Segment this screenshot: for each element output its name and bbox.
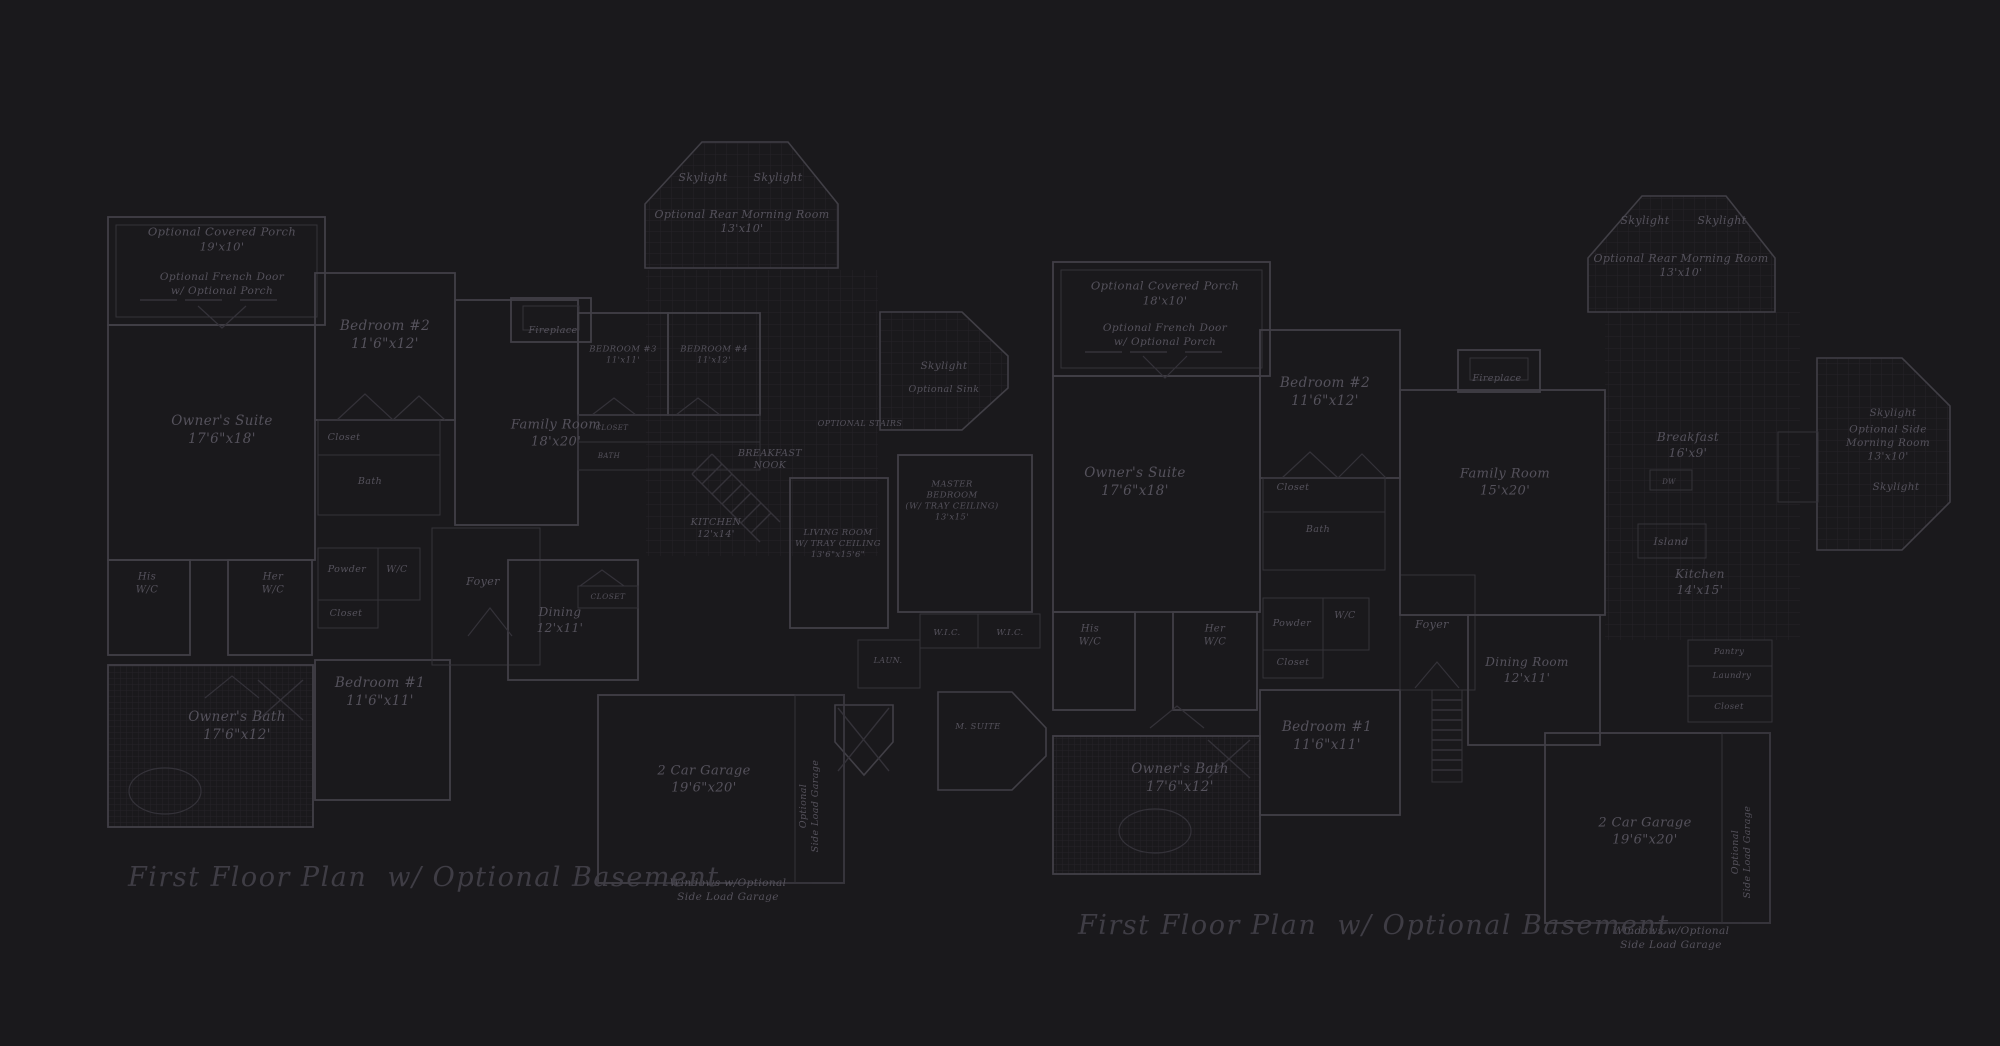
label-bath: Bath [357, 476, 382, 487]
suite-bay [938, 692, 1046, 790]
label-skylight: Skylight [678, 171, 727, 184]
label-fireplace: Fireplace [527, 325, 577, 336]
label-m-suite: M. SUITE [954, 722, 1001, 732]
plan-title-right: First Floor Plan w/ Optional Basement [1078, 910, 1670, 941]
label-optional-covered-porch: Optional Covered Porch18'x10' [1091, 279, 1239, 308]
label-bedroom-2: Bedroom #211'6"x12' [1279, 375, 1370, 409]
label-bedroom-1: Bedroom #111'6"x11' [1281, 719, 1372, 753]
label-skylight: Skylight [920, 360, 967, 372]
label-island: Island [1652, 536, 1688, 548]
closet-door-chevron [393, 396, 445, 420]
label-closet: CLOSET [591, 592, 626, 601]
label-closet: Closet [330, 608, 363, 619]
label-closet: CLOSET [596, 424, 630, 432]
label-foyer: Foyer [1414, 618, 1449, 631]
closet-door-chevron [1143, 356, 1187, 378]
right-plan: SkylightSkylightOptional Rear Morning Ro… [1053, 196, 1950, 951]
label-owner-s-suite: Owner's Suite17'6"x18' [1084, 465, 1186, 499]
label-closet: Closet [1277, 482, 1310, 493]
label-laun: LAUN. [873, 656, 903, 665]
closet-door-chevron [592, 398, 636, 415]
label-skylight: Skylight [1872, 481, 1919, 493]
label-dw: DW [1661, 478, 1676, 486]
label-dining: Dining12'x11' [537, 605, 584, 635]
label-his: HisW/C [1079, 624, 1102, 648]
label-w-i-c: W.I.C. [933, 628, 960, 638]
label-owner-s-suite: Owner's Suite17'6"x18' [171, 413, 273, 447]
label-closet: Closet [1714, 702, 1744, 712]
label-kitchen: Kitchen14'x15' [1674, 567, 1725, 597]
label-2-car-garage: 2 Car Garage19'6"x20' [1597, 816, 1691, 848]
label-optional: OptionalSide Load Garage [798, 760, 821, 853]
label-optional-stairs: OPTIONAL STAIRS [818, 419, 903, 428]
label-pantry: Pantry [1713, 647, 1745, 657]
tile-owners-bath-floor [108, 665, 313, 827]
closet-door-chevron [468, 608, 512, 636]
label-closet: Closet [328, 432, 361, 443]
closet-door-chevron [337, 394, 393, 420]
room-stairs [1432, 690, 1462, 782]
rear-morning-room [645, 142, 838, 268]
room-family-room [1400, 390, 1605, 615]
room-wc-room [1323, 598, 1369, 650]
label-bath: BATH [597, 452, 621, 460]
label-skylight: Skylight [753, 171, 802, 184]
label-her: HerW/C [1204, 624, 1227, 648]
room-foyer [432, 528, 540, 665]
label-2-car-garage: 2 Car Garage19'6"x20' [656, 764, 750, 796]
label-w-c: W/C [386, 564, 408, 575]
label-family-room: Family Room18'x20' [510, 418, 601, 450]
label-skylight: Skylight [1869, 407, 1916, 419]
room-bedroom-2-bath [1263, 512, 1385, 570]
label-optional-french-door: Optional French Doorw/ Optional Porch [160, 271, 285, 297]
room-foyer [1400, 575, 1475, 690]
label-laundry: Laundry [1712, 671, 1752, 681]
label-closet: Closet [1277, 657, 1310, 668]
label-bedroom-1: Bedroom #111'6"x11' [334, 675, 425, 709]
label-master: MASTERBEDROOM(W/ TRAY CEILING)13'x15' [905, 479, 998, 522]
label-optional-covered-porch: Optional Covered Porch19'x10' [148, 225, 296, 254]
label-dining-room: Dining Room12'x11' [1484, 655, 1569, 685]
label-kitchen: KITCHEN12'x14' [690, 517, 742, 540]
label-family-room: Family Room15'x20' [1459, 467, 1550, 499]
left-plan: SkylightSkylightOptional Rear Morning Ro… [108, 142, 1046, 903]
label-bedroom-2: Bedroom #211'6"x12' [339, 318, 430, 352]
closet-door-chevron [1415, 662, 1459, 688]
plan-title-left: First Floor Plan w/ Optional Basement [128, 862, 720, 893]
label-optional-french-door: Optional French Doorw/ Optional Porch [1103, 322, 1228, 348]
closet-door-chevron [1282, 452, 1338, 478]
closet-door-chevron [580, 570, 624, 586]
label-foyer: Foyer [465, 575, 500, 588]
label-her: HerW/C [262, 572, 285, 596]
label-powder: Powder [327, 564, 368, 575]
label-bath: Bath [1305, 524, 1330, 535]
label-fireplace: Fireplace [1471, 373, 1521, 384]
label-optional-sink: Optional Sink [909, 384, 980, 395]
label-optional: OptionalSide Load Garage [1730, 806, 1753, 899]
label-powder: Powder [1272, 618, 1313, 629]
label-his: HisW/C [136, 572, 159, 596]
closet-door-chevron [1338, 454, 1386, 478]
label-w-i-c: W.I.C. [996, 628, 1023, 638]
label-skylight: Skylight [1620, 214, 1669, 227]
label-w-c: W/C [1334, 610, 1356, 621]
label-skylight: Skylight [1697, 214, 1746, 227]
